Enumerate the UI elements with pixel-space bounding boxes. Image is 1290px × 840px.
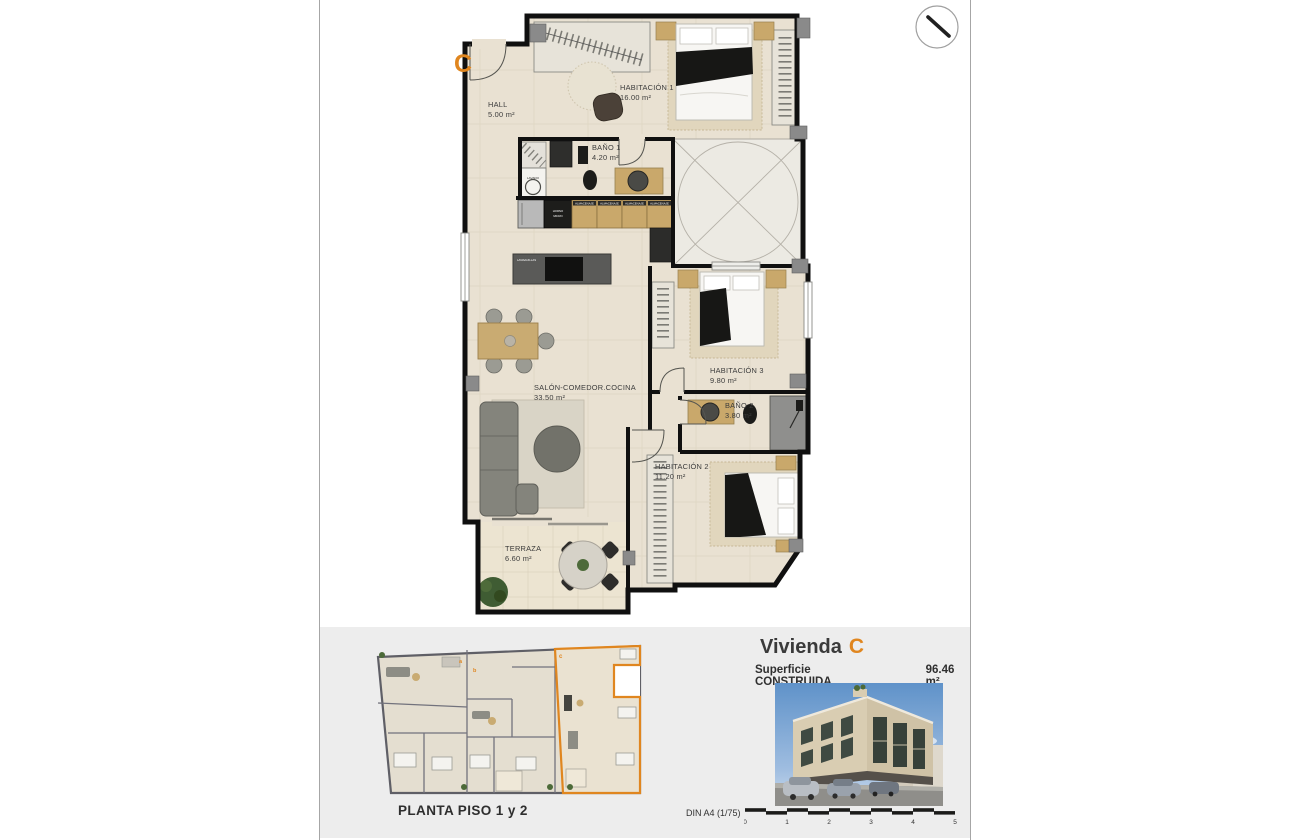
scale-tick: 5: [953, 819, 957, 826]
svg-text:HABITACIÓN 3: HABITACIÓN 3: [710, 366, 764, 375]
unit-title-prefix: Vivienda: [760, 636, 842, 659]
kitchen-island: LAVAVAJILLAS: [513, 254, 611, 284]
room-label-bano1: BAÑO 1 4.20 m²: [592, 143, 621, 162]
wardrobe-habitacion1-right: [772, 30, 798, 125]
svg-text:TERRAZA: TERRAZA: [505, 544, 541, 553]
overview-unit-c: c: [555, 646, 640, 793]
svg-text:5.00 m²: 5.00 m²: [488, 110, 515, 119]
toilet-icon: [583, 170, 597, 190]
sink-icon: [628, 171, 648, 191]
svg-text:6.60 m²: 6.60 m²: [505, 554, 532, 563]
scale-bar: 0 1 2 3 4 5: [744, 803, 960, 829]
oven-label-2: MICRO: [553, 214, 563, 218]
storage-label: ALMACENAJE: [575, 202, 594, 206]
sheet-right-border: [970, 0, 971, 840]
wardrobe-habitacion3: [652, 282, 674, 348]
storage-label: ALMACENAJE: [650, 202, 669, 206]
bed-habitacion1: [656, 22, 774, 130]
svg-text:HALL: HALL: [488, 100, 508, 109]
floor-plan: LAVADO HORNO MICRO ALMACENAJE ALMACENAJE: [320, 0, 970, 627]
overview-floorplan: c a b: [364, 637, 644, 802]
footer-panel: c a b PLANTA PISO 1 y 2 Vivienda C Super…: [320, 627, 970, 838]
svg-text:4.20 m²: 4.20 m²: [592, 153, 619, 162]
kitchen-tall-unit: [650, 228, 673, 262]
scale-tick: 1: [785, 819, 789, 826]
svg-text:HABITACIÓN 1: HABITACIÓN 1: [620, 83, 674, 92]
floor-plan-area: LAVADO HORNO MICRO ALMACENAJE ALMACENAJE: [320, 0, 970, 627]
storage-label: ALMACENAJE: [600, 202, 619, 206]
svg-text:11.20 m²: 11.20 m²: [655, 472, 686, 481]
north-indicator-icon: [916, 6, 958, 48]
scale-tick: 2: [827, 819, 831, 826]
svg-text:BAÑO 1: BAÑO 1: [592, 143, 621, 152]
scale-label: DIN A4 (1/75): [686, 808, 741, 818]
scale-tick: 3: [869, 819, 873, 826]
svg-text:BAÑO 2: BAÑO 2: [725, 401, 754, 410]
svg-text:HABITACIÓN 2: HABITACIÓN 2: [655, 462, 709, 471]
washer-label: LAVADO: [527, 176, 540, 180]
patio-lightwell: [673, 139, 803, 266]
plan-sheet: LAVADO HORNO MICRO ALMACENAJE ALMACENAJE: [0, 0, 1290, 840]
svg-text:3.80 m²: 3.80 m²: [725, 411, 752, 420]
bed-habitacion2: [710, 456, 802, 552]
svg-text:33.50 m²: 33.50 m²: [534, 393, 565, 402]
overview-caption: PLANTA PISO 1 y 2: [398, 803, 528, 818]
svg-text:SALÓN-COMEDOR.COCINA: SALÓN-COMEDOR.COCINA: [534, 383, 636, 392]
svg-text:16.00 m²: 16.00 m²: [620, 93, 651, 102]
room-label-bano2: BAÑO 2 3.80 m²: [725, 401, 754, 420]
dishwasher-label: LAVAVAJILLAS: [517, 258, 536, 262]
unit-letter: C: [454, 50, 472, 78]
bed-habitacion3: [678, 270, 786, 358]
unit-title-letter: C: [849, 635, 864, 659]
scale-tick: 0: [744, 819, 747, 826]
terrace-plant: [478, 577, 508, 607]
svg-text:9.80 m²: 9.80 m²: [710, 376, 737, 385]
scale-tick: 4: [911, 819, 915, 826]
building-photo: [775, 683, 943, 806]
unit-title: Vivienda C: [760, 635, 864, 659]
storage-label: ALMACENAJE: [625, 202, 644, 206]
oven-label-1: HORNO: [553, 209, 564, 213]
